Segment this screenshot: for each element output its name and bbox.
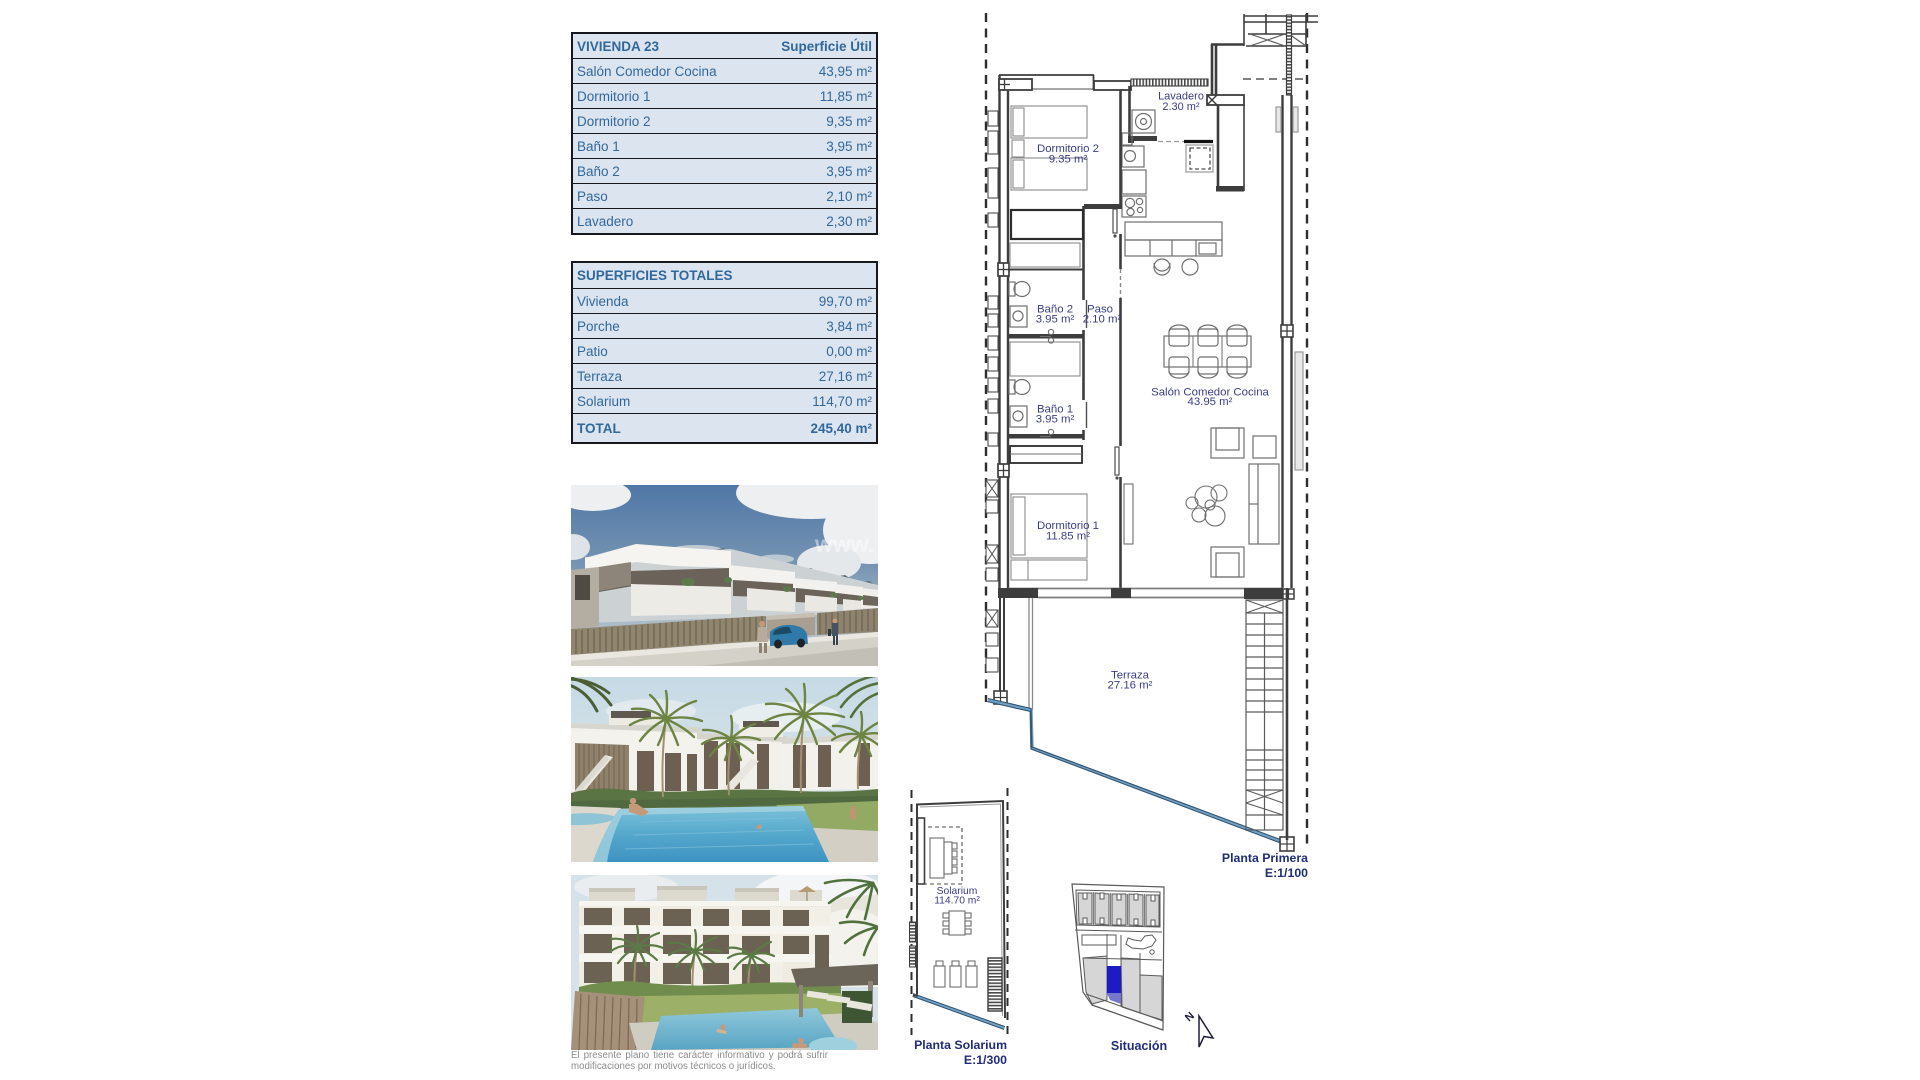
svg-text:2.30 m²: 2.30 m² (1162, 101, 1200, 113)
svg-text:E:1/100: E:1/100 (1265, 866, 1308, 880)
svg-text:9.35 m²: 9.35 m² (1049, 154, 1088, 166)
svg-text:N: N (1183, 1010, 1197, 1024)
svg-text:3.95 m²: 3.95 m² (1036, 314, 1075, 326)
svg-text:2.10 m²: 2.10 m² (1083, 314, 1122, 326)
svg-text:27.16 m²: 27.16 m² (1108, 680, 1153, 692)
svg-text:11.85 m²: 11.85 m² (1046, 531, 1090, 543)
svg-text:www.: www. (814, 531, 874, 557)
svg-text:Situación: Situación (1111, 1039, 1167, 1053)
svg-text:Planta Solarium: Planta Solarium (914, 1038, 1007, 1052)
svg-text:E:1/300: E:1/300 (964, 1053, 1007, 1067)
svg-text:43.95 m²: 43.95 m² (1188, 396, 1233, 408)
svg-text:3.95 m²: 3.95 m² (1036, 414, 1075, 426)
svg-text:Planta Primera: Planta Primera (1222, 851, 1308, 865)
svg-text:114.70 m²: 114.70 m² (934, 896, 980, 907)
